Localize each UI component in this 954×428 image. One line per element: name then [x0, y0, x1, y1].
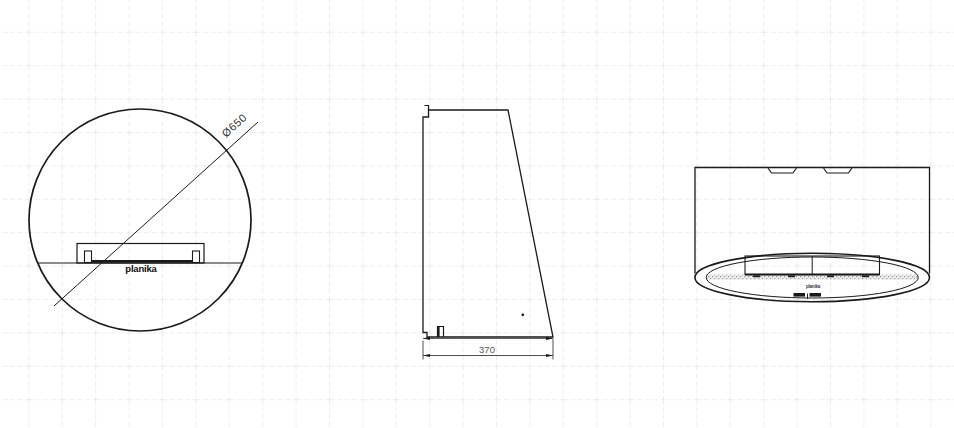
clip-left [794, 293, 806, 297]
technical-drawing-sheet: planika Ø650 370 [0, 0, 954, 428]
mounting-hole-dot [521, 313, 524, 316]
brand-logo-text: planika [125, 263, 157, 274]
width-dimension-label: 370 [479, 344, 495, 355]
burner-tab-3 [827, 275, 834, 277]
burner-tab-2 [788, 275, 795, 277]
graph-paper-grid [0, 0, 954, 428]
clip-right [810, 293, 822, 297]
brand-mark-small: planika [806, 284, 821, 289]
drawing-canvas: planika Ø650 370 [0, 0, 954, 428]
burner-tab-4 [862, 275, 869, 277]
burner-tab-1 [753, 275, 760, 277]
